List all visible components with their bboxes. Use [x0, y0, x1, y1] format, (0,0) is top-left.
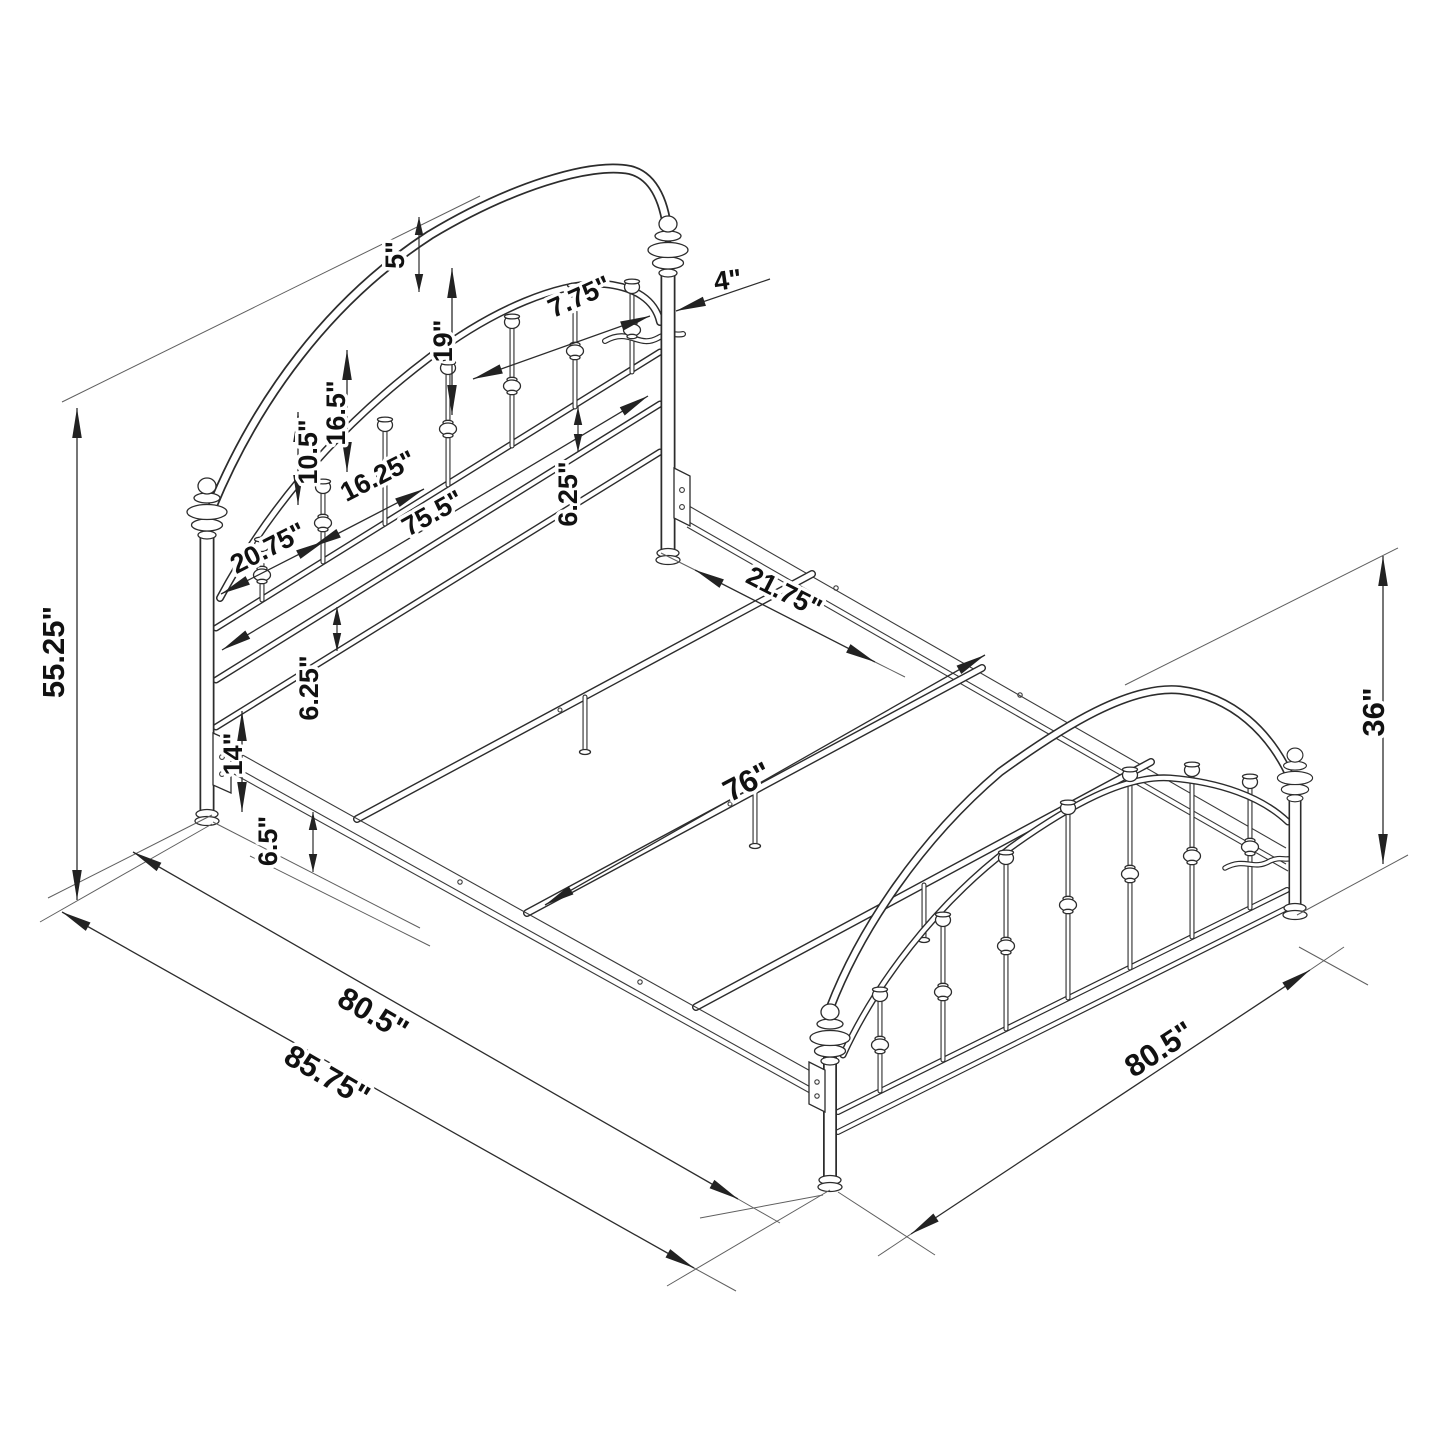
dim-label-post-offset: 4"	[712, 263, 744, 297]
rail-bracket	[674, 468, 690, 526]
dim-label-headboard-height: 55.25"	[36, 606, 71, 698]
dim-label-footboard-side-length: 80.5"	[1118, 1014, 1200, 1084]
diagram-page: 55.25" 5" 4" 7.75" 19" 16.5" 10.5" 16.25…	[0, 0, 1445, 1445]
dim-label-overall-length: 85.75"	[279, 1038, 376, 1114]
dimension-lines	[62, 217, 1383, 1268]
footboard	[809, 690, 1313, 1192]
dim-label-spindle-long: 19"	[428, 320, 458, 363]
dimension-labels: 55.25" 5" 4" 7.75" 19" 16.5" 10.5" 16.25…	[36, 241, 1391, 1114]
dim-label-footboard-height: 36"	[1356, 687, 1391, 736]
dim-label-spindle-short: 10.5"	[293, 419, 323, 484]
dim-label-bottom-rail-height: 14"	[218, 733, 248, 776]
dim-label-frame-inner-width: 76"	[717, 755, 777, 809]
dim-label-rail-gap-upper: 6.25"	[553, 461, 583, 526]
bed-dimension-drawing: 55.25" 5" 4" 7.75" 19" 16.5" 10.5" 16.25…	[0, 0, 1445, 1445]
dim-label-arch-gap: 5"	[380, 241, 410, 269]
side-rail-right	[682, 502, 1288, 871]
rail-bracket	[809, 1062, 825, 1112]
dim-label-spindle-mid: 16.5"	[321, 380, 351, 445]
dim-label-rail-gap-lower: 6.25"	[294, 655, 324, 720]
dim-label-spindle-spacing-top: 7.75"	[543, 270, 615, 324]
dim-label-side-rail-floor-gap: 6.5"	[253, 816, 283, 866]
dim-label-slat-spacing: 21.75"	[741, 560, 826, 623]
